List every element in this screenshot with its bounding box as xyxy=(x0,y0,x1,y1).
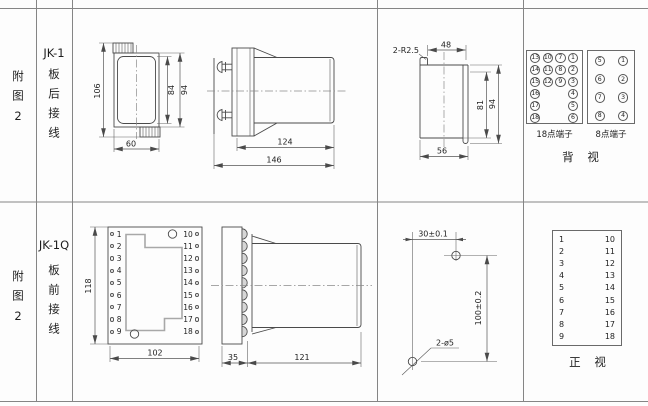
row1-model-label: JK-1 xyxy=(36,46,72,60)
terminal-circle: 17 xyxy=(530,101,540,111)
terminal-dot-icon xyxy=(195,305,199,309)
dim-30: 30±0.1 xyxy=(418,230,448,239)
front-terminal: 14 xyxy=(172,277,199,289)
dim-94: 94 xyxy=(180,85,189,95)
right-terminal-number: 11 xyxy=(605,247,615,256)
terminal-circle: 2 xyxy=(618,74,628,84)
dim-102: 102 xyxy=(147,349,162,358)
front-terminal: 9 xyxy=(110,326,134,338)
terminal-number: 17 xyxy=(183,315,193,324)
left-terminal-number: 5 xyxy=(559,283,564,292)
terminal-circle: 6 xyxy=(595,74,605,84)
row1-figure-label-wrap: 附图2 xyxy=(0,70,36,131)
left-terminal-number: 6 xyxy=(559,296,564,305)
row2-wiring-label-wrap: 板前接线 xyxy=(36,264,72,342)
dim-60: 60 xyxy=(126,140,136,149)
terminal-dot-icon xyxy=(195,281,199,285)
jk1-side-view: 124 146 xyxy=(207,48,346,169)
terminal-box-18: 131071141182151293164175186 xyxy=(526,50,583,124)
terminal-dot-icon xyxy=(110,269,114,273)
right-terminal-number: 18 xyxy=(605,332,615,341)
terminal-circle: 2 xyxy=(568,65,578,75)
front-terminal: 2 xyxy=(110,240,134,252)
front-terminal: 6 xyxy=(110,289,134,301)
dim-81: 81 xyxy=(476,100,485,110)
terminal-number: 7 xyxy=(117,303,122,312)
row1-wiring-label-wrap: 板后接线 xyxy=(36,68,72,146)
terminal-circle: 8 xyxy=(595,111,605,121)
dim-121: 121 xyxy=(294,353,309,362)
terminal-number: 14 xyxy=(183,278,193,287)
terminal-number: 18 xyxy=(183,327,193,336)
right-terminal-number: 17 xyxy=(605,320,615,329)
terminal-table-row: 312 xyxy=(559,257,615,269)
terminal-dot-icon xyxy=(110,244,114,248)
terminal-dot-icon xyxy=(195,330,199,334)
front-terminal: 13 xyxy=(172,265,199,277)
front-terminal: 15 xyxy=(172,289,199,301)
left-terminal-number: 9 xyxy=(559,332,564,341)
terminal-circle: 15 xyxy=(530,77,540,87)
row2-figure-label: 附图2 xyxy=(10,270,26,331)
terminal-table-row: 413 xyxy=(559,270,615,282)
terminal-number: 13 xyxy=(183,266,193,275)
left-terminal-number: 1 xyxy=(559,235,564,244)
jk1q-side-view: 35 121 xyxy=(211,227,372,367)
left-terminal-number: 2 xyxy=(559,247,564,256)
terminal-circle: 13 xyxy=(530,53,540,63)
front-terminal: 18 xyxy=(172,326,199,338)
dim-corner-radius: 2-R2.5 xyxy=(393,46,419,55)
dim-106: 106 xyxy=(93,83,102,98)
terminal-table-row: 817 xyxy=(559,319,615,331)
jk1q-drilling-plan: 30±0.1 100±0.2 2-ø5 xyxy=(402,230,497,376)
terminal-dot-icon xyxy=(110,305,114,309)
terminal-circle: 5 xyxy=(595,56,605,66)
terminal-number: 11 xyxy=(183,242,193,251)
row2-figure-label-wrap: 附图2 xyxy=(0,270,36,331)
terminal-number: 15 xyxy=(183,291,193,300)
right-terminal-number: 15 xyxy=(605,296,615,305)
dim-holes: 2-ø5 xyxy=(436,339,454,348)
left-terminal-number: 4 xyxy=(559,271,564,280)
dim-56: 56 xyxy=(437,147,447,156)
terminal-dot-icon xyxy=(195,293,199,297)
figure-sheet: 106 84 94 60 124 146 xyxy=(0,0,648,406)
terminal-circle: 7 xyxy=(555,53,565,63)
front-terminal: 4 xyxy=(110,265,134,277)
right-terminal-number: 12 xyxy=(605,259,615,268)
dim-48: 48 xyxy=(441,41,451,50)
terminal-table-front: 110211312413514615716817918 xyxy=(552,230,622,346)
front-view-right-terminals: 101112131415161718 xyxy=(172,228,199,338)
front-terminal: 5 xyxy=(110,277,134,289)
front-terminal: 8 xyxy=(110,313,134,325)
dim-118: 118 xyxy=(84,278,93,293)
front-terminal: 11 xyxy=(172,240,199,252)
terminal-box-8: 51627384 xyxy=(587,50,635,124)
dim-94b: 94 xyxy=(488,99,497,109)
terminal-circle: 12 xyxy=(543,77,553,87)
left-terminal-number: 7 xyxy=(559,308,564,317)
terminal-dot-icon xyxy=(195,244,199,248)
dim-35: 35 xyxy=(228,353,238,362)
right-terminal-number: 13 xyxy=(605,271,615,280)
right-terminal-number: 10 xyxy=(605,235,615,244)
rear-view-label: 背 视 xyxy=(523,149,643,165)
terminal-circle: 3 xyxy=(568,77,578,87)
terminal-circle: 3 xyxy=(618,92,628,102)
terminal-table-row: 211 xyxy=(559,245,615,257)
terminal-number: 2 xyxy=(117,242,122,251)
terminal-number: 9 xyxy=(117,327,122,336)
front-view-left-terminals: 123456789 xyxy=(110,228,134,338)
front-view-label: 正 视 xyxy=(545,354,635,370)
front-terminal: 1 xyxy=(110,228,134,240)
front-terminal: 10 xyxy=(172,228,199,240)
dim-146: 146 xyxy=(266,156,281,165)
front-terminal: 16 xyxy=(172,301,199,313)
front-terminal: 7 xyxy=(110,301,134,313)
row2-wiring-label: 板前接线 xyxy=(46,264,62,342)
left-terminal-number: 3 xyxy=(559,259,564,268)
terminal-table-row: 918 xyxy=(559,331,615,343)
terminal-circle: 10 xyxy=(543,53,553,63)
dim-100: 100±0.2 xyxy=(474,291,483,326)
terminal-number: 10 xyxy=(183,230,193,239)
terminal-number: 8 xyxy=(117,315,122,324)
terminal-circle: 1 xyxy=(568,53,578,63)
terminal-number: 16 xyxy=(183,303,193,312)
terminal-circle: 14 xyxy=(530,65,540,75)
terminal-table-row: 514 xyxy=(559,282,615,294)
terminal-dot-icon xyxy=(195,317,199,321)
terminal-dot-icon xyxy=(110,281,114,285)
terminal-dot-icon xyxy=(110,317,114,321)
terminal-circle: 9 xyxy=(555,77,565,87)
terminal-dot-icon xyxy=(195,256,199,260)
terminal-dot-icon xyxy=(195,232,199,236)
front-terminal: 3 xyxy=(110,252,134,264)
terminal-number: 4 xyxy=(117,266,122,275)
right-terminal-number: 16 xyxy=(605,308,615,317)
jk1-rear-flange-view: 48 2-R2.5 81 94 56 xyxy=(393,41,502,161)
terminal-number: 3 xyxy=(117,254,122,263)
front-terminal: 12 xyxy=(172,252,199,264)
jk1-top-view: 106 84 94 60 xyxy=(93,43,189,152)
terminal-dot-icon xyxy=(110,232,114,236)
terminal-circle: 16 xyxy=(530,89,540,99)
terminal-number: 1 xyxy=(117,230,122,239)
front-terminal: 17 xyxy=(172,313,199,325)
caption-18-terminals: 18点端子 xyxy=(526,128,583,140)
terminal-circle: 11 xyxy=(543,65,553,75)
terminal-number: 5 xyxy=(117,278,122,287)
terminal-table-row: 110 xyxy=(559,233,615,245)
terminal-circle: 4 xyxy=(618,111,628,121)
row1-wiring-label: 板后接线 xyxy=(46,68,62,146)
terminal-circle: 4 xyxy=(568,89,578,99)
terminal-circle: 7 xyxy=(595,92,605,102)
terminal-dot-icon xyxy=(110,293,114,297)
right-terminal-number: 14 xyxy=(605,283,615,292)
caption-8-terminals: 8点端子 xyxy=(587,128,635,140)
terminal-circle: 1 xyxy=(618,56,628,66)
terminal-table-row: 716 xyxy=(559,306,615,318)
terminal-number: 6 xyxy=(117,291,122,300)
row2-model-label: JK-1Q xyxy=(34,238,74,252)
row1-figure-label: 附图2 xyxy=(10,70,26,131)
terminal-table-row: 615 xyxy=(559,294,615,306)
terminal-circle: 5 xyxy=(568,101,578,111)
terminal-dot-icon xyxy=(110,330,114,334)
left-terminal-number: 8 xyxy=(559,320,564,329)
dim-124: 124 xyxy=(277,138,292,147)
terminal-dot-icon xyxy=(195,269,199,273)
terminal-number: 12 xyxy=(183,254,193,263)
terminal-circle: 18 xyxy=(530,113,540,123)
dim-84: 84 xyxy=(167,85,176,95)
terminal-circle: 8 xyxy=(555,65,565,75)
terminal-dot-icon xyxy=(110,256,114,260)
terminal-circle: 6 xyxy=(568,113,578,123)
